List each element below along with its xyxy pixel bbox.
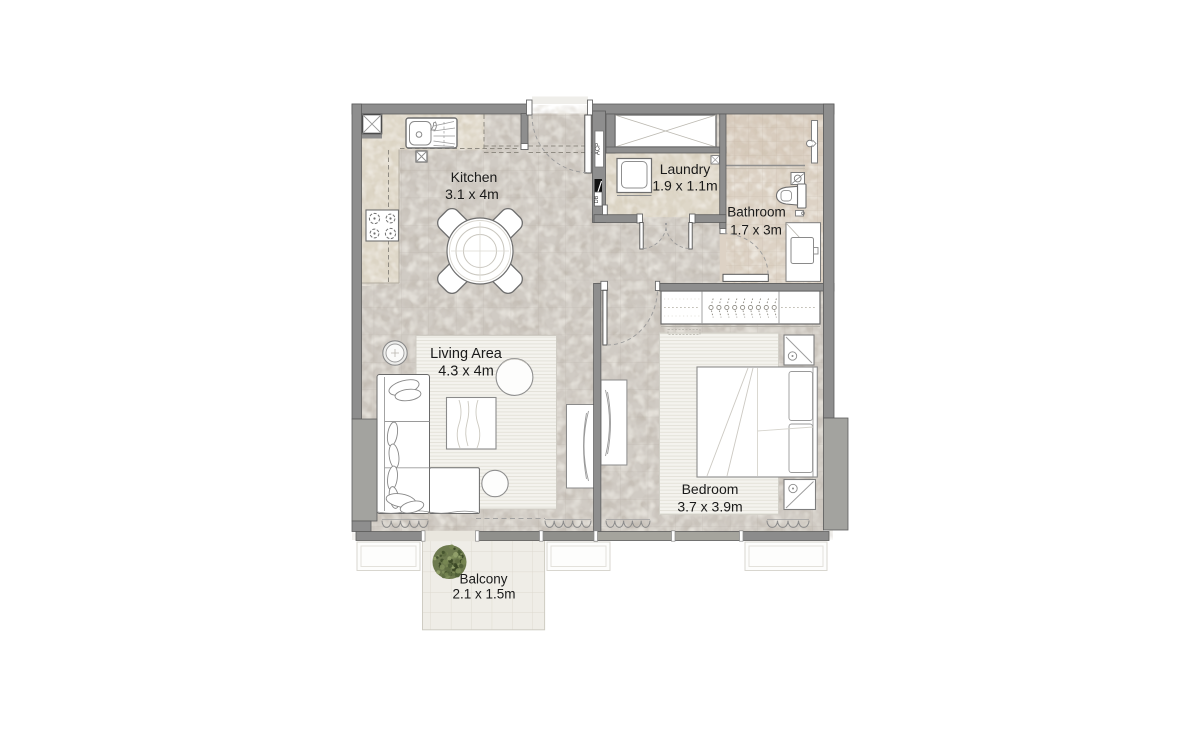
svg-text:1.9 x 1.1m: 1.9 x 1.1m xyxy=(652,178,717,194)
svg-text:DB: DB xyxy=(594,195,600,203)
svg-text:Laundry: Laundry xyxy=(660,161,711,177)
svg-text:3.1 x 4m: 3.1 x 4m xyxy=(445,186,499,202)
svg-text:ACP: ACP xyxy=(596,143,602,155)
svg-text:Bathroom: Bathroom xyxy=(727,205,786,220)
svg-text:1.7 x 3m: 1.7 x 3m xyxy=(730,223,782,238)
svg-text:Kitchen: Kitchen xyxy=(451,169,498,185)
svg-text:3.7 x 3.9m: 3.7 x 3.9m xyxy=(677,499,742,515)
svg-text:4.3 x 4m: 4.3 x 4m xyxy=(438,364,494,380)
svg-text:Bedroom: Bedroom xyxy=(682,481,739,497)
svg-text:Living Area: Living Area xyxy=(430,346,503,362)
svg-text:2.1 x 1.5m: 2.1 x 1.5m xyxy=(452,587,515,602)
svg-text:Balcony: Balcony xyxy=(459,572,507,587)
